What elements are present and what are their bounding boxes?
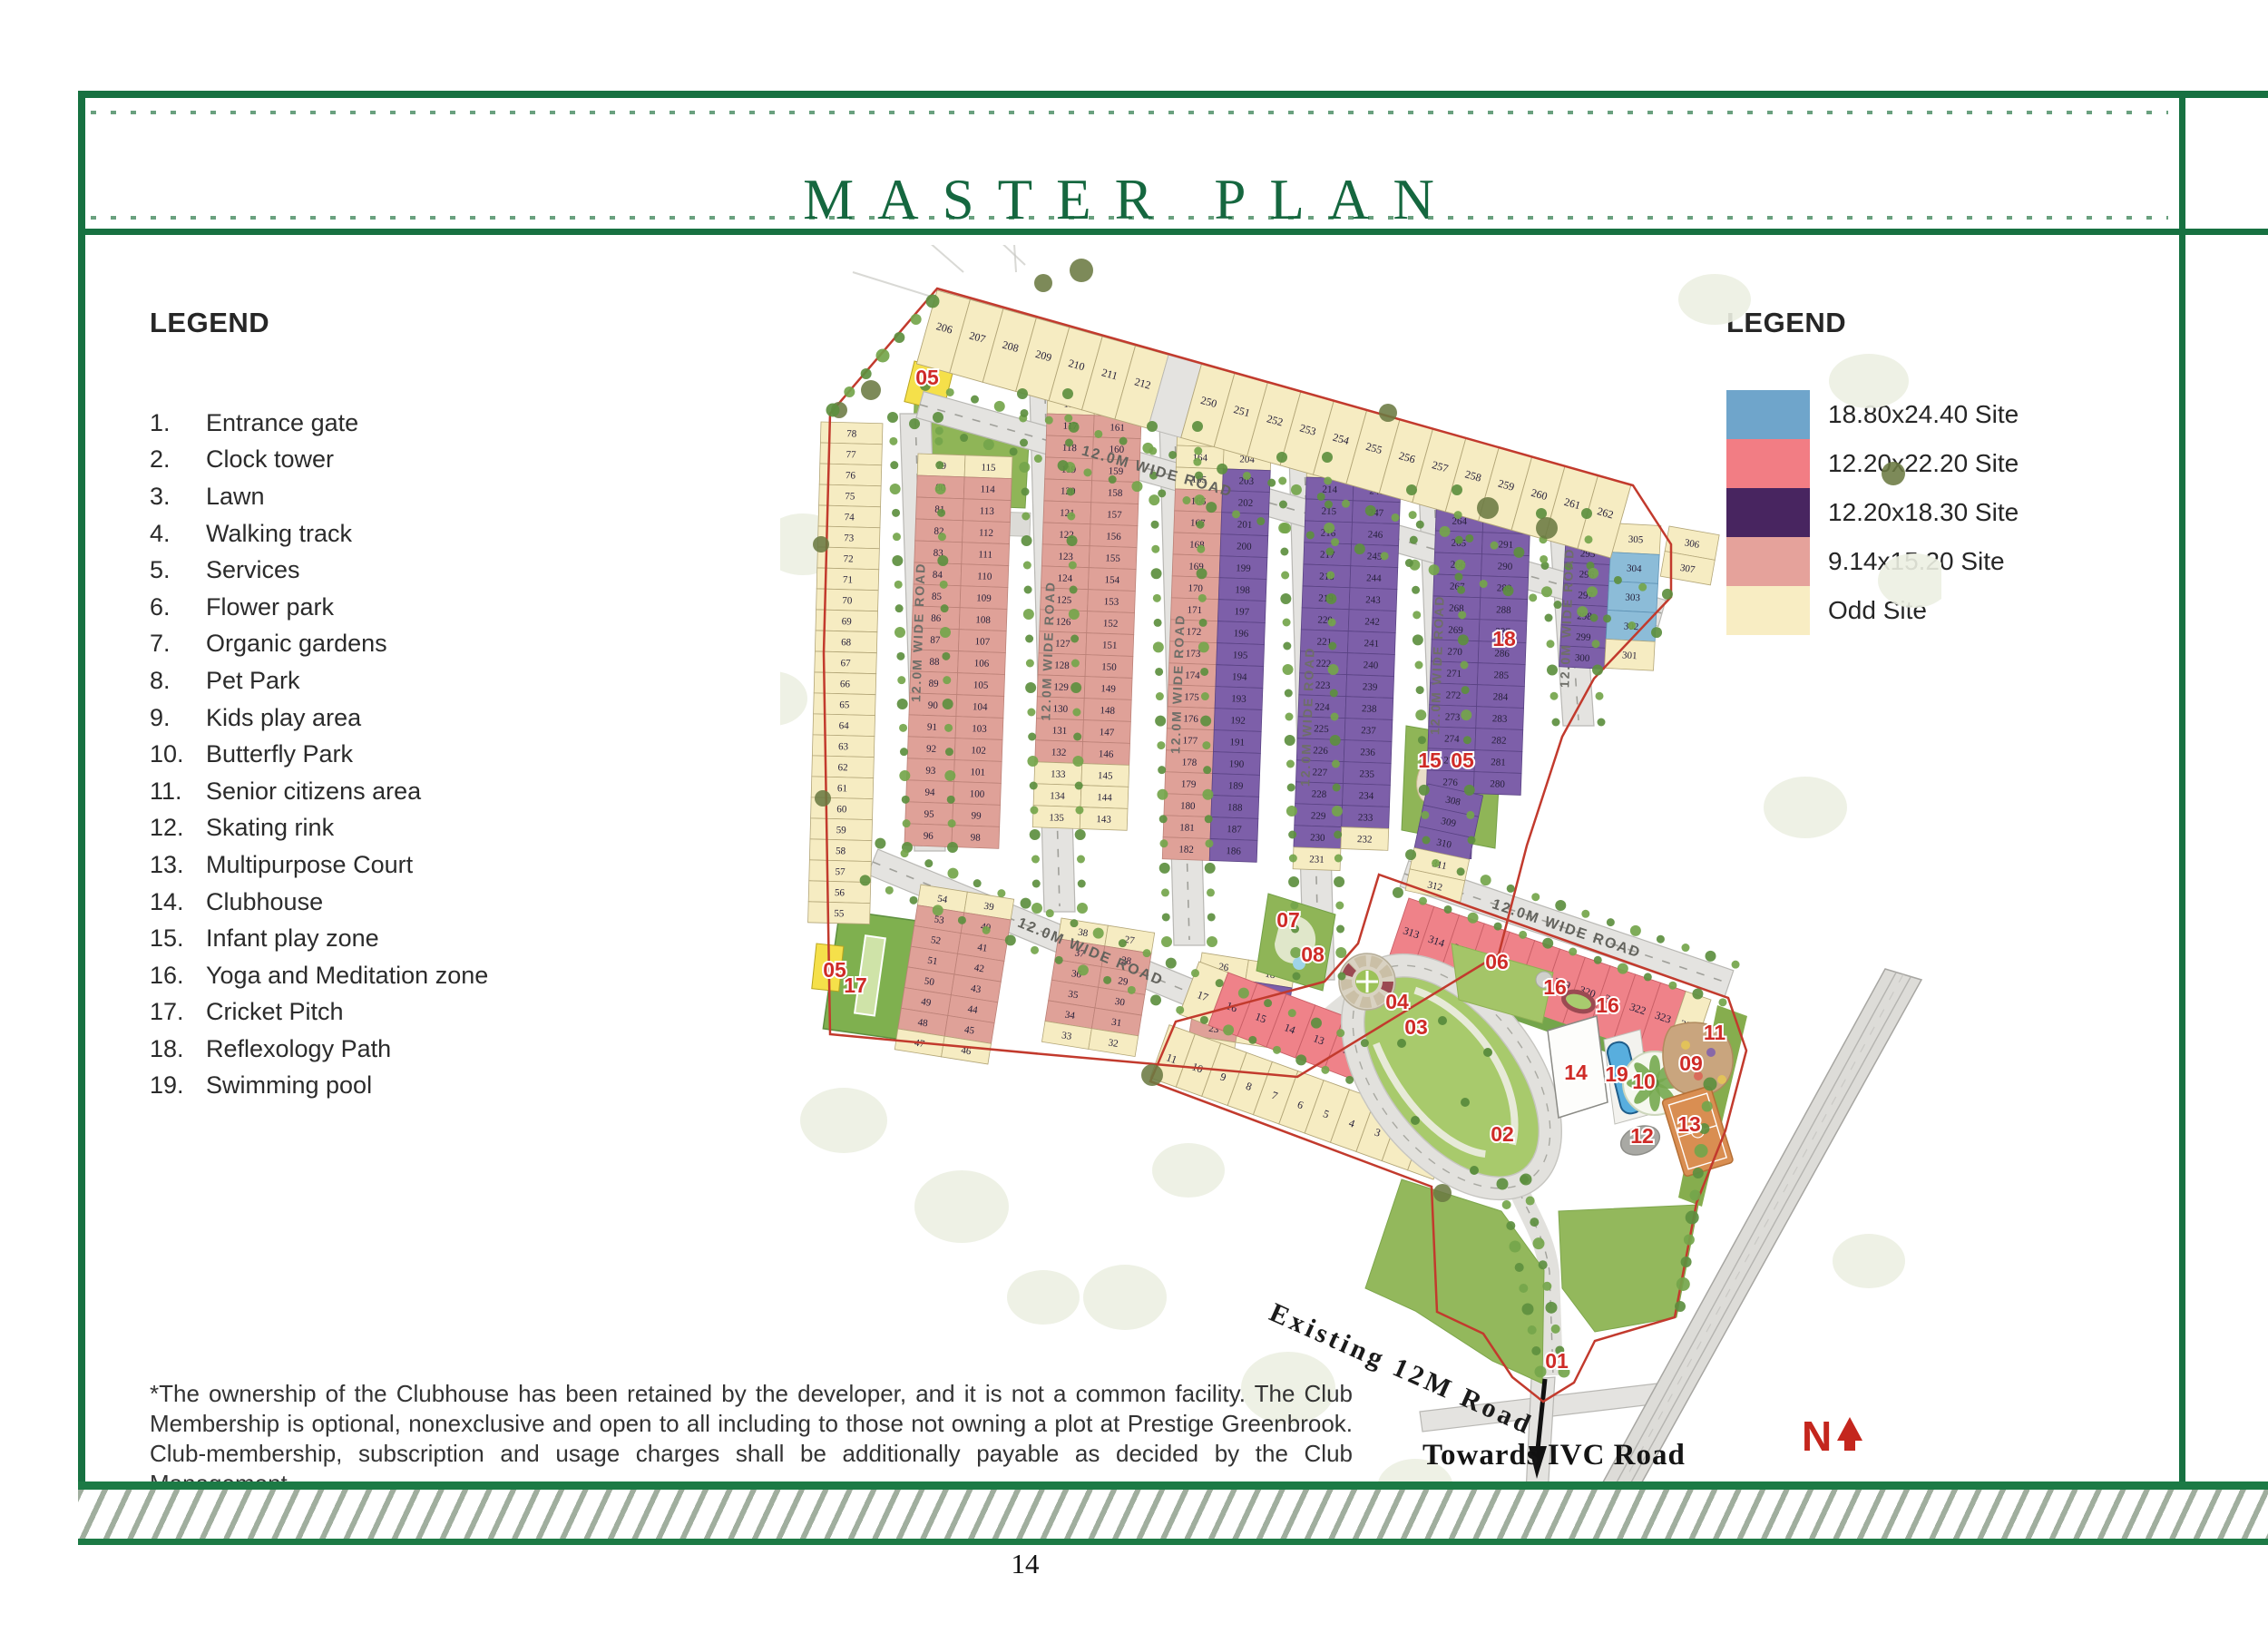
plot-number: 243 [1365, 594, 1381, 606]
legend-item-label: Infant play zone [206, 924, 379, 953]
plot-number: 226 [1313, 745, 1328, 757]
legend-item-number: 16. [150, 962, 206, 990]
plot-number: 236 [1360, 747, 1375, 758]
legend-item: 8.Pet Park [150, 662, 488, 699]
plot-number: 126 [1056, 616, 1071, 628]
plot-number: 244 [1366, 572, 1382, 584]
plot-number: 238 [1362, 703, 1377, 715]
plot-number: 96 [924, 830, 934, 841]
legend-item: 2.Clock tower [150, 442, 488, 479]
plot-number: 90 [928, 700, 939, 711]
plot-number: 59 [836, 825, 847, 836]
legend-item-label: Yoga and Meditation zone [206, 962, 488, 990]
plot-number: 133 [1051, 768, 1066, 780]
plot-number: 109 [976, 592, 992, 604]
plot-number: 102 [971, 745, 986, 757]
plot-number: 93 [925, 766, 936, 777]
plot-number: 60 [836, 804, 847, 815]
legend-item-number: 8. [150, 667, 206, 695]
plot-number: 224 [1315, 701, 1330, 713]
plot-number: 128 [1054, 660, 1070, 671]
plot-number: 76 [846, 470, 856, 481]
plot-number: 181 [1179, 822, 1195, 834]
plot-number: 301 [1622, 650, 1637, 661]
plot-number: 75 [845, 491, 855, 502]
legend-item-number: 10. [150, 740, 206, 768]
plot-number: 155 [1105, 552, 1120, 564]
legend-item-number: 18. [150, 1035, 206, 1063]
legend-amenities: LEGEND 1.Entrance gate2.Clock tower3.Law… [150, 307, 488, 1104]
frame-left-border [78, 91, 85, 1545]
plot-number: 58 [836, 846, 846, 856]
map-marker-08: 08 [1301, 943, 1325, 966]
map-marker-02: 02 [1491, 1122, 1514, 1146]
plot-number: 106 [974, 658, 990, 670]
plot-number: 179 [1181, 778, 1197, 790]
plot-number: 180 [1180, 800, 1196, 812]
plot-number: 283 [1492, 713, 1508, 725]
legend-item-label: Senior citizens area [206, 777, 421, 806]
map-marker-11: 11 [1704, 1021, 1726, 1044]
map-marker-19: 19 [1605, 1062, 1628, 1086]
plot-number: 103 [972, 723, 987, 735]
legend-item-label: Clock tower [206, 445, 334, 474]
plot-number: 143 [1096, 814, 1111, 826]
legend-item-label: Butterfly Park [206, 740, 353, 768]
plot-number: 73 [844, 533, 855, 543]
plot-number: 110 [977, 571, 992, 582]
legend-item-label: Swimming pool [206, 1071, 372, 1100]
plot-number: 300 [1575, 652, 1591, 664]
plot-number: 65 [839, 699, 850, 710]
page-title: MASTER PLAN [78, 167, 2183, 233]
legend-item: 13.Multipurpose Court [150, 846, 488, 884]
plot-number: 41 [977, 942, 989, 954]
plot-number: 187 [1227, 824, 1242, 836]
page-number: 14 [989, 1548, 1061, 1580]
plot-number: 161 [1110, 422, 1125, 434]
legend-item-label: Clubhouse [206, 888, 323, 916]
plot-number: 127 [1055, 638, 1070, 650]
plot-number: 299 [1576, 631, 1592, 643]
plot-number: 87 [930, 635, 941, 646]
plot-number: 98 [971, 832, 982, 843]
plot-number: 200 [1237, 541, 1252, 552]
plot-number: 154 [1104, 574, 1119, 586]
plot-number: 276 [1442, 777, 1458, 788]
plot-number: 223 [1315, 680, 1331, 691]
plot-number: 78 [846, 428, 857, 439]
map-marker-16: 16 [1596, 993, 1619, 1017]
map-marker-09: 09 [1679, 1051, 1703, 1075]
plot-number: 84 [933, 570, 943, 581]
plot-number: 153 [1104, 596, 1119, 608]
map-marker-16: 16 [1543, 975, 1567, 999]
plot-number: 63 [838, 741, 849, 752]
plot-number: 240 [1364, 660, 1379, 671]
legend-item: 12.Skating rink [150, 810, 488, 847]
plot-number: 123 [1058, 552, 1073, 563]
plot-number: 182 [1178, 844, 1194, 856]
legend-item: 5.Services [150, 552, 488, 589]
plot-number: 231 [1309, 854, 1325, 865]
plot-number: 273 [1445, 711, 1461, 723]
legend-item: 17.Cricket Pitch [150, 994, 488, 1032]
plot-number: 61 [837, 783, 847, 794]
map-marker-04: 04 [1385, 990, 1409, 1013]
legend-item: 11.Senior citizens area [150, 773, 488, 810]
plot-number: 85 [932, 592, 943, 602]
legend-item-label: Walking track [206, 520, 352, 548]
plot-number: 225 [1314, 723, 1329, 735]
legend-item-label: Organic gardens [206, 630, 387, 658]
legend-item-label: Entrance gate [206, 409, 358, 437]
decorative-hatched-band [78, 1481, 2268, 1545]
plot-number: 100 [969, 788, 984, 800]
plot-number: 174 [1185, 670, 1200, 681]
map-marker-03: 03 [1404, 1015, 1428, 1039]
plot-number: 112 [979, 527, 994, 539]
plot-number: 111 [978, 549, 992, 561]
north-arrow-stem [1844, 1431, 1855, 1451]
plot-number: 91 [927, 722, 937, 733]
plot-number: 191 [1229, 737, 1245, 748]
legend-item: 3.Lawn [150, 478, 488, 515]
plot-number: 176 [1183, 713, 1198, 725]
plot-number: 274 [1444, 733, 1460, 745]
legend-item-number: 2. [150, 445, 206, 474]
plot-number: 130 [1052, 703, 1068, 715]
legend-item: 7.Organic gardens [150, 626, 488, 663]
plot-number: 172 [1187, 626, 1202, 638]
plot-number: 108 [975, 614, 991, 626]
legend-item-label: Services [206, 556, 300, 584]
brochure-page: { "page": { "title": "MASTER PLAN", "pag… [0, 0, 2268, 1633]
plot-number: 92 [926, 744, 936, 755]
map-marker-05: 05 [915, 366, 939, 389]
plot-number: 290 [1498, 561, 1513, 572]
map-marker-15: 15 [1418, 748, 1442, 772]
plot-number: 68 [841, 637, 852, 648]
plot-number: 304 [1627, 563, 1643, 575]
plot-number: 234 [1358, 790, 1374, 802]
plot-number: 195 [1233, 650, 1248, 661]
legend-item-label: Multipurpose Court [206, 851, 413, 879]
legend-item: 19.Swimming pool [150, 1068, 488, 1105]
plot-number: 186 [1226, 846, 1241, 857]
plot-number: 189 [1228, 780, 1244, 792]
legend-item-number: 7. [150, 630, 206, 658]
plot-number: 150 [1101, 661, 1117, 673]
plot-number: 151 [1102, 640, 1118, 651]
legend-item: 4.Walking track [150, 515, 488, 552]
plot-number: 149 [1100, 683, 1116, 695]
plot-number: 70 [842, 595, 853, 606]
plot-number: 170 [1188, 583, 1203, 595]
plot-number: 74 [845, 512, 855, 523]
plot-number: 147 [1099, 727, 1114, 738]
plot-number: 241 [1364, 638, 1379, 650]
legend-item-number: 6. [150, 593, 206, 621]
legend-item-label: Cricket Pitch [206, 998, 344, 1026]
legend-item-label: Skating rink [206, 814, 334, 842]
legend-item-label: Lawn [206, 483, 265, 511]
plot-number: 232 [1357, 834, 1373, 846]
plot-number: 72 [843, 553, 853, 564]
legend-item-label: Pet Park [206, 667, 300, 695]
legend-item-number: 14. [150, 888, 206, 916]
legend-item-number: 1. [150, 409, 206, 437]
plot-number: 113 [980, 505, 995, 517]
plot-number: 202 [1238, 497, 1254, 509]
plot-number: 71 [843, 574, 853, 585]
legend-heading: LEGEND [150, 307, 488, 339]
map-marker-05: 05 [1451, 748, 1474, 772]
plot-number: 175 [1184, 691, 1199, 703]
plot-number: 272 [1446, 689, 1461, 701]
plot-number: 188 [1227, 802, 1243, 814]
plot-number: 158 [1108, 487, 1123, 499]
plot-number: 284 [1493, 691, 1509, 703]
plot-number: 129 [1053, 681, 1069, 693]
plot-strip-col-78-55: 7877767574737271706968676665646362616059… [808, 422, 883, 924]
legend-item-label: Flower park [206, 593, 334, 621]
plot-number: 31 [1110, 1017, 1122, 1030]
plot-number: 271 [1446, 668, 1461, 680]
plot-number: 152 [1103, 618, 1119, 630]
plot-number: 32 [1108, 1037, 1119, 1050]
north-indicator: N [1802, 1412, 1873, 1461]
plot-number: 281 [1491, 757, 1506, 768]
frame-right-border [2179, 91, 2185, 1545]
plot-number: 246 [1368, 529, 1383, 541]
plot-number: 89 [928, 679, 939, 689]
plot-number: 194 [1232, 671, 1247, 683]
plot-number: 235 [1359, 768, 1374, 780]
map-marker-07: 07 [1276, 908, 1300, 932]
plot-number: 107 [974, 636, 990, 648]
frame-top-line [78, 91, 2268, 98]
plot-number: 88 [929, 657, 940, 668]
plot-number: 94 [924, 787, 935, 797]
legend-item-number: 9. [150, 704, 206, 732]
plot-number: 62 [837, 762, 847, 773]
plot-number: 173 [1186, 648, 1201, 660]
plot-number: 193 [1231, 693, 1246, 705]
plot-number: 192 [1230, 715, 1246, 727]
plot-number: 214 [1322, 484, 1337, 496]
plot-number: 105 [973, 680, 989, 691]
legend-item-label: Reflexology Path [206, 1035, 391, 1063]
map-marker-05: 05 [823, 958, 846, 982]
plot-number: 55 [834, 908, 845, 919]
plot-number: 285 [1493, 670, 1509, 681]
plot-number: 269 [1448, 625, 1463, 637]
plot-number: 67 [840, 658, 851, 669]
plot-number: 134 [1050, 790, 1065, 802]
plot-number: 64 [839, 720, 850, 731]
legend-item: 14.Clubhouse [150, 884, 488, 921]
legend-item: 16.Yoga and Meditation zone [150, 957, 488, 994]
plot-number: 177 [1182, 735, 1198, 747]
map-marker-12: 12 [1630, 1124, 1654, 1148]
plot-number: 104 [973, 701, 988, 713]
legend-items: 1.Entrance gate2.Clock tower3.Lawn4.Walk… [150, 405, 488, 1104]
frame-dotted-top [91, 111, 2168, 114]
map-marker-18: 18 [1492, 627, 1516, 650]
legend-item: 1.Entrance gate [150, 405, 488, 442]
plot-number: 291 [1498, 539, 1513, 551]
plot-number: 52 [930, 934, 942, 947]
legend-item: 10.Butterfly Park [150, 736, 488, 773]
map-marker-13: 13 [1677, 1112, 1701, 1136]
plot-number: 66 [840, 679, 851, 689]
legend-item-number: 5. [150, 556, 206, 584]
legend-item-number: 19. [150, 1071, 206, 1100]
plot-number: 86 [931, 613, 942, 624]
plot-number: 69 [842, 616, 853, 627]
plot-number: 196 [1234, 628, 1249, 640]
legend-item: 6.Flower park [150, 589, 488, 626]
plot-number: 146 [1099, 748, 1114, 760]
plot-number: 95 [924, 808, 934, 819]
plot-number: 201 [1237, 519, 1253, 531]
sketch-lines [844, 245, 1025, 298]
legend-item: 15.Infant play zone [150, 920, 488, 957]
legend-item: 9.Kids play area [150, 699, 488, 737]
plot-number: 171 [1187, 604, 1202, 616]
plot-number: 197 [1234, 606, 1249, 618]
plot-number: 288 [1496, 604, 1511, 616]
plot-number: 114 [980, 484, 995, 495]
legend-item: 18.Reflexology Path [150, 1031, 488, 1068]
plot-number: 237 [1361, 725, 1376, 737]
plot-number: 57 [835, 866, 846, 877]
map-marker-14: 14 [1564, 1061, 1588, 1084]
map-marker-17: 17 [844, 973, 867, 997]
plot-number: 190 [1228, 758, 1244, 770]
map-marker-10: 10 [1632, 1070, 1656, 1093]
plot-number: 239 [1363, 681, 1378, 693]
plot-number: 303 [1625, 592, 1641, 603]
plot-number: 305 [1628, 534, 1644, 546]
legend-item-number: 3. [150, 483, 206, 511]
plot-number: 125 [1057, 594, 1072, 606]
map-marker-06: 06 [1485, 950, 1509, 973]
plot-number: 77 [846, 449, 856, 460]
plot-number: 198 [1235, 584, 1250, 596]
plot-number: 156 [1106, 531, 1121, 543]
plot-number: 229 [1311, 810, 1326, 822]
plot-number: 132 [1051, 747, 1067, 758]
plot-strip-sub1: 54535251504948473940414243444546 [894, 885, 1014, 1064]
plot-number: 135 [1049, 812, 1064, 824]
legend-item-number: 13. [150, 851, 206, 879]
plot-number: 56 [835, 887, 846, 898]
plot-number: 157 [1107, 509, 1122, 521]
north-label: N [1802, 1412, 1832, 1461]
plot-number: 178 [1182, 757, 1198, 768]
plot-strip-s7: 306307 [1660, 526, 1719, 585]
towards-ivc-road-label: Towards IVC Road [1422, 1439, 1667, 1472]
plot-number: 245 [1367, 551, 1383, 562]
plot-number: 51 [927, 955, 939, 968]
plot-number: 144 [1097, 792, 1112, 804]
legend-item-number: 4. [150, 520, 206, 548]
plot-number: 228 [1312, 788, 1327, 800]
plot-number: 230 [1310, 832, 1325, 844]
plot-number: 148 [1100, 705, 1115, 717]
plot-number: 242 [1364, 616, 1380, 628]
plot-number: 99 [971, 810, 982, 821]
plot-number: 124 [1057, 572, 1072, 584]
plot-number: 270 [1447, 647, 1462, 659]
legend-item-number: 17. [150, 998, 206, 1026]
legend-item-label: Kids play area [206, 704, 361, 732]
plot-number: 282 [1491, 735, 1507, 747]
plot-number: 233 [1358, 812, 1374, 824]
plot-number: 145 [1098, 770, 1113, 782]
plot-number: 131 [1052, 725, 1068, 737]
plot-number: 42 [973, 963, 985, 975]
plot-number: 280 [1490, 778, 1505, 790]
legend-item-number: 11. [150, 777, 206, 806]
plot-number: 115 [981, 462, 996, 474]
legend-item-number: 15. [150, 924, 206, 953]
plot-number: 101 [970, 767, 985, 778]
map-marker-01: 01 [1545, 1349, 1569, 1373]
plot-number: 227 [1312, 767, 1327, 778]
legend-item-number: 12. [150, 814, 206, 842]
plot-number: 199 [1236, 562, 1251, 574]
